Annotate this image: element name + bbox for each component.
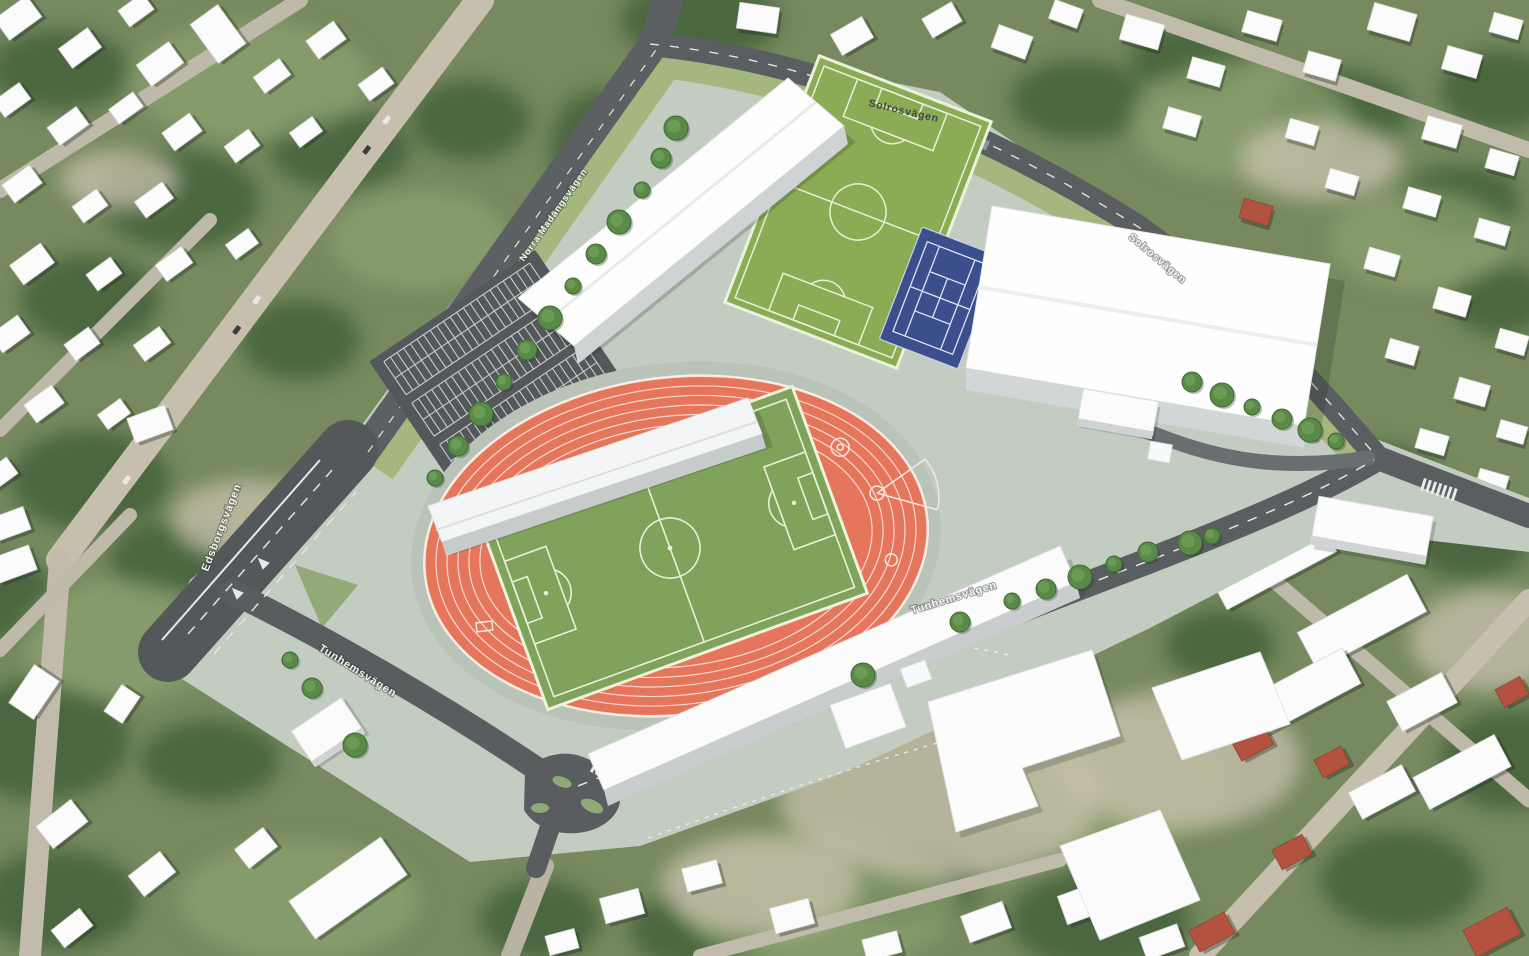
house-roof (736, 2, 779, 33)
tree-highlight (567, 280, 576, 289)
tree-highlight (1330, 435, 1339, 444)
tree-canopy (1010, 60, 1150, 140)
tree-highlight (284, 654, 293, 663)
tree-highlight (1275, 412, 1286, 423)
tree-highlight (541, 309, 554, 322)
junction-island (531, 803, 549, 813)
tree-highlight (305, 681, 316, 692)
tree-highlight (953, 615, 964, 626)
tree-highlight (589, 247, 600, 258)
tree-highlight (520, 343, 531, 354)
tree-highlight (1185, 375, 1196, 386)
tree-highlight (1246, 401, 1255, 410)
tree-highlight (1141, 545, 1152, 556)
service-building (1148, 441, 1173, 463)
tree-highlight (1206, 530, 1215, 539)
site-visualization: Solrosvägen Solrosvägen Norra Madängsväg… (0, 0, 1529, 956)
tree-highlight (429, 472, 438, 481)
site-plan-canvas: Solrosvägen Solrosvägen Norra Madängsväg… (0, 0, 1529, 956)
tree-canopy (1320, 830, 1480, 930)
tree-highlight (1301, 421, 1314, 434)
tree-highlight (854, 666, 867, 679)
tree-highlight (1039, 582, 1050, 593)
tree-highlight (1181, 534, 1194, 547)
tree-highlight (610, 213, 623, 226)
service-building-roof (1148, 441, 1173, 463)
tree-highlight (1006, 595, 1015, 604)
tree-highlight (498, 376, 507, 385)
tree-highlight (472, 405, 485, 418)
tree-highlight (1108, 558, 1117, 567)
tree-highlight (654, 151, 665, 162)
tree-highlight (636, 184, 645, 193)
tree-highlight (1071, 568, 1084, 581)
tree-highlight (451, 439, 462, 450)
background-house (736, 2, 783, 38)
tree-highlight (1213, 386, 1226, 399)
tree-highlight (346, 736, 359, 749)
tree-canopy (140, 720, 280, 800)
tree-highlight (667, 119, 680, 132)
